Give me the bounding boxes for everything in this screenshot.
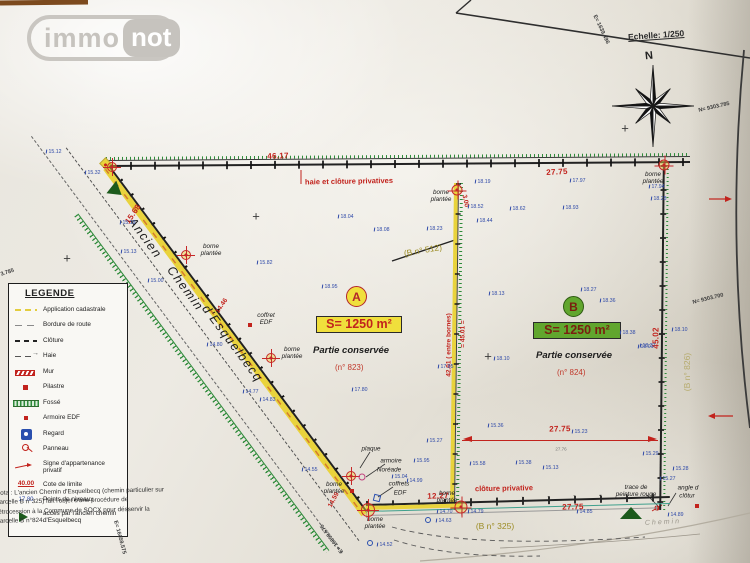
level-point: 17.85: [438, 364, 453, 370]
grid-cross-icon: +: [63, 251, 71, 266]
map-label: (B n° 325): [476, 522, 514, 532]
level-point: 18.95: [322, 284, 337, 290]
legend-row: Armoire EDF: [13, 413, 125, 423]
level-point: 18.93: [563, 205, 578, 211]
noreade-plate-marker: [359, 474, 366, 481]
legend-label: Regard: [43, 430, 64, 437]
logo-immo-text: immo: [44, 23, 120, 54]
legend-label: Signe d'appartenance privatif: [43, 460, 125, 474]
map-label: borne plantée: [437, 490, 458, 504]
level-point: 15.28: [673, 466, 688, 472]
compass-rose-icon: [607, 60, 699, 152]
level-point: 18.10: [494, 356, 509, 362]
legend-label: Mur: [43, 368, 54, 375]
nota-text: Nota : L'ancien Chemin d'Esquelbecq (che…: [0, 485, 172, 526]
level-point: 14.79: [468, 509, 483, 515]
legend-row: Bordure de route: [13, 320, 125, 330]
legend-symbol-pan-icon: [13, 444, 39, 454]
photo-edge: [0, 0, 88, 5]
legend-row: Application cadastrale: [13, 305, 125, 315]
level-point: 15.23: [572, 429, 587, 435]
level-point: 18.38: [620, 330, 635, 336]
legend-label: Application cadastrale: [43, 306, 106, 313]
scale-label: Echelle: 1/250: [628, 28, 685, 42]
level-point: 18.10: [672, 327, 687, 333]
level-point: 18.19: [475, 179, 490, 185]
edf-box-marker: [695, 504, 699, 508]
level-point: 15.38: [516, 460, 531, 466]
grid-coordinate: E= 1639.496: [592, 14, 611, 45]
legend-row: Fossé: [13, 398, 125, 408]
level-point: 18.28: [651, 196, 666, 202]
edf-box-marker: [350, 489, 354, 493]
parcel-b-area: S= 1250 m²: [533, 322, 621, 339]
map-label: clôtur: [679, 492, 694, 499]
map-label: = 45.01 =: [459, 320, 466, 347]
legend-row: Regard: [13, 429, 125, 439]
legend-label: Panneau: [43, 445, 69, 452]
level-point: 14.55: [302, 467, 317, 473]
legend-symbol-bord-icon: [13, 320, 39, 330]
map-label: (B n° 512): [403, 243, 442, 259]
map-label: angle d: [678, 484, 699, 491]
borne-marker: [181, 250, 191, 260]
level-point: 17.94: [649, 184, 664, 190]
borne-marker: [266, 353, 276, 363]
grid-cross-icon: +: [484, 349, 492, 364]
legend-label: Haie: [43, 352, 56, 359]
level-point: 14.80: [207, 342, 222, 348]
map-label: borne plantée: [324, 481, 345, 495]
level-point: 14.89: [668, 512, 683, 518]
dimension-arrow: [462, 440, 658, 441]
legend-row: Pilastre: [13, 382, 125, 392]
map-label: Chemin: [645, 518, 681, 528]
logo-not-badge: not: [123, 19, 180, 57]
level-point: 14.83: [260, 397, 275, 403]
level-point: 14.63: [436, 518, 451, 524]
map-label: borne plantée: [282, 346, 303, 360]
level-point: 18.44: [477, 218, 492, 224]
access-triangle-icon: [620, 507, 642, 519]
map-label: plaque: [362, 445, 381, 452]
map-label: haie et clôture privatives: [305, 177, 393, 187]
level-point: 15.19: [120, 220, 135, 226]
level-point: 15.27: [427, 438, 442, 444]
legend-row: Mur: [13, 367, 125, 377]
level-point: 15.32: [85, 170, 100, 176]
borne-marker: [455, 501, 468, 514]
grid-coordinate: 3.785: [0, 268, 15, 278]
parcel-a-badge: A: [346, 286, 367, 307]
level-point: 18.23: [427, 226, 442, 232]
borne-marker: [107, 162, 117, 172]
level-point: 15.00: [148, 278, 163, 284]
level-point: 15.36: [488, 423, 503, 429]
borne-marker: [452, 185, 463, 196]
map-label: armoire: [380, 457, 401, 464]
legend-label: Armoire EDF: [43, 414, 80, 421]
map-label: 27.75: [549, 424, 571, 434]
survey-plan-photo: immo not Echelle: 1/250 N Ancien Chemin …: [0, 0, 750, 563]
grid-cross-icon: +: [621, 121, 629, 136]
legend-symbol-pil-icon: [13, 382, 39, 392]
regard-marker: [367, 540, 373, 546]
map-label: coffret EDF: [257, 312, 275, 326]
level-point: 15.12: [46, 149, 61, 155]
level-point: 14.99: [407, 478, 422, 484]
dimension-tick: [656, 505, 657, 510]
level-point: 18.52: [468, 204, 483, 210]
immonot-logo: immo not: [27, 15, 179, 61]
map-label: trace de peinture rouge: [616, 484, 657, 498]
level-point: 18.27: [581, 287, 596, 293]
map-label: 46.17: [267, 151, 289, 161]
legend-symbol-app-icon: [13, 305, 39, 315]
level-point: 17.97: [570, 178, 585, 184]
level-point: 18.01: [638, 344, 653, 350]
parcel-a-kept: Partie conservée: [313, 345, 389, 356]
map-label: EDF: [394, 489, 407, 496]
level-point: 15.82: [257, 260, 272, 266]
regard-marker: [425, 517, 431, 523]
level-point: 17.80: [352, 387, 367, 393]
borne-marker: [659, 160, 670, 171]
legend-row: Panneau: [13, 444, 125, 454]
level-point: 18.13: [489, 291, 504, 297]
level-point: 14.77: [243, 389, 258, 395]
map-label: borne plantée: [201, 243, 222, 257]
level-point: 15.95: [414, 458, 429, 464]
level-point: 18.36: [600, 298, 615, 304]
legend-row: Haie: [13, 351, 125, 361]
legend-label: Fossé: [43, 399, 60, 406]
level-point: 14.70: [437, 509, 452, 515]
level-point: 15.04: [392, 474, 407, 480]
map-label: clôture privative: [475, 484, 533, 494]
legend-label: Bordure de route: [43, 321, 91, 328]
legend-row: Signe d'appartenance privatif: [13, 460, 125, 474]
parcel-b-badge: B: [563, 296, 584, 317]
map-label: 14.46: [214, 297, 229, 315]
map-label: (B n° 826): [683, 353, 693, 391]
level-point: 14.85: [577, 509, 592, 515]
parcel-b-kept: Partie conservée: [536, 350, 612, 361]
parcel-a-number: (n° 823): [335, 363, 364, 372]
map-label: 27.75: [546, 167, 568, 177]
level-point: 15.13: [543, 465, 558, 471]
map-label: Noréade: [377, 466, 401, 473]
legend-symbol-clot-icon: [13, 336, 39, 346]
legend-row: Clôture: [13, 336, 125, 346]
parcel-b-number: (n° 824): [557, 368, 586, 377]
legend-title: LEGENDE: [25, 288, 125, 299]
boundary-north: [106, 153, 690, 171]
parcel-a-area: S= 1250 m²: [316, 316, 402, 333]
grid-cross-icon: +: [252, 209, 260, 224]
legend-symbol-mur-icon: [13, 367, 39, 377]
legend-symbol-arm-icon: [13, 413, 39, 423]
level-point: 15.29: [643, 451, 658, 457]
level-point: 14.52: [377, 542, 392, 548]
level-point: 18.04: [338, 214, 353, 220]
level-point: 15.27: [660, 476, 675, 482]
legend-label: Clôture: [43, 337, 64, 344]
level-point: 18.08: [374, 227, 389, 233]
legend-symbol-reg-icon: [13, 429, 39, 439]
map-label: 27.76: [555, 446, 566, 451]
legend-label: Pilastre: [43, 383, 64, 390]
edf-box-marker: [248, 323, 252, 327]
borne-marker: [346, 471, 356, 481]
level-point: 15.13: [121, 249, 136, 255]
level-point: 15.58: [470, 461, 485, 467]
legend-symbol-sig-icon: [13, 462, 39, 472]
legend-symbol-haie-icon: [13, 351, 39, 361]
legend-symbol-fos-icon: [13, 398, 39, 408]
level-point: 18.62: [510, 206, 525, 212]
borne-marker: [361, 503, 375, 517]
